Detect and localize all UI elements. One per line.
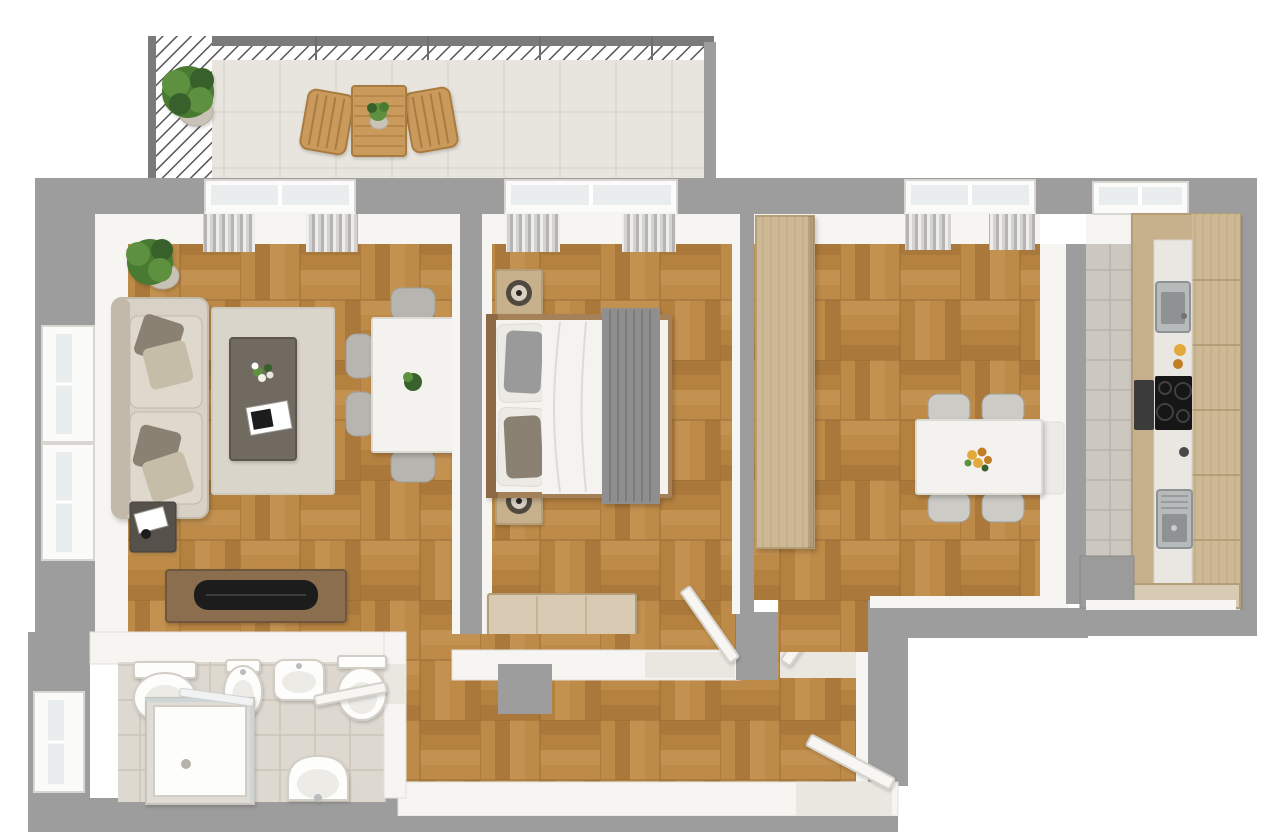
cooktop — [1155, 376, 1192, 430]
tv-sideboard — [166, 570, 346, 622]
kitchen-jar — [1173, 359, 1183, 369]
hallway-pillar — [498, 664, 552, 714]
pedestal-sink — [288, 756, 348, 802]
living-window-left-1 — [42, 326, 94, 442]
terrace-table-plant — [367, 102, 389, 129]
bedroom — [452, 180, 740, 658]
bathroom-right-wall — [384, 632, 406, 798]
nightstand-top — [496, 270, 542, 316]
side-table — [130, 502, 176, 552]
curtain — [905, 214, 951, 250]
sink-faucet — [314, 794, 322, 802]
dining-chair — [346, 334, 374, 378]
living-room — [42, 180, 480, 638]
bedroom-dining-wall-face-west — [732, 214, 740, 614]
shower-drain — [181, 759, 191, 769]
kitchen-window — [1093, 182, 1188, 214]
dining-chair — [391, 450, 435, 482]
floor-plan-svg — [0, 0, 1280, 832]
kitchen-counter — [1132, 214, 1240, 608]
curtain — [203, 214, 255, 252]
terrace-bistro-table — [352, 86, 406, 156]
living-bedroom-wall-face-west — [452, 214, 460, 658]
bedroom-dining-wall — [740, 214, 754, 614]
dining-chair — [391, 288, 435, 320]
washbasin — [274, 660, 324, 700]
dining-bottom-wall-face — [870, 596, 1068, 610]
dining-floor-door-bay — [778, 598, 868, 652]
kitchen — [1066, 182, 1257, 636]
terrace-railing-left-bar — [148, 36, 156, 178]
dining-kitchen-wall — [1066, 244, 1086, 604]
coffee-table — [230, 338, 296, 460]
kitchen-sink-bottom — [1157, 490, 1192, 548]
cabinet-column — [1192, 214, 1240, 584]
dining-bottom-wall — [868, 608, 1088, 638]
shower-cabin — [146, 688, 254, 804]
terrace-railing-top-bar — [148, 36, 714, 46]
pot — [1179, 447, 1189, 457]
dining-chair — [982, 492, 1024, 522]
curtain — [506, 214, 560, 252]
terrace-chair-left — [299, 88, 355, 155]
door-partition-stub — [736, 612, 778, 680]
faucet — [1181, 313, 1187, 319]
terrace-railing-top — [148, 46, 714, 60]
bathroom-window — [34, 692, 84, 792]
dining-chair — [346, 392, 374, 436]
wardrobe — [756, 216, 814, 548]
dining-room — [732, 180, 1088, 652]
shower-tray — [154, 706, 246, 796]
entry-threshold — [796, 782, 892, 816]
sofa — [112, 298, 208, 518]
right-wall — [1240, 178, 1257, 636]
bathroom-door-threshold — [384, 664, 406, 704]
bed-throw-blanket — [602, 308, 660, 504]
curtain — [622, 214, 676, 252]
kitchen-bottom-wall — [1066, 610, 1257, 636]
terrace-right-wall — [704, 42, 716, 178]
dining-table — [916, 420, 1042, 494]
terrace — [148, 36, 716, 178]
terrace-chair-right — [403, 86, 459, 153]
bedroom-door-threshold — [645, 652, 735, 678]
bidet-faucet — [240, 669, 246, 675]
dining-chair — [928, 492, 970, 522]
terrace-floor — [212, 56, 708, 178]
table-plant-leaf — [403, 372, 413, 382]
radiator — [1040, 422, 1064, 494]
basin-faucet — [296, 663, 302, 669]
kitchen-sink-top — [1156, 282, 1190, 332]
curtain — [989, 214, 1035, 250]
kitchen-jar — [1174, 344, 1186, 356]
living-bedroom-wall — [460, 214, 482, 658]
floor-plan-render: 3D top-down floor plan of a two-room apa… — [0, 0, 1280, 832]
double-bed — [486, 308, 672, 504]
hallway-bottom-wall — [398, 816, 898, 832]
living-window-left-2 — [42, 444, 94, 560]
curtain — [306, 214, 358, 252]
oven — [1134, 380, 1154, 430]
